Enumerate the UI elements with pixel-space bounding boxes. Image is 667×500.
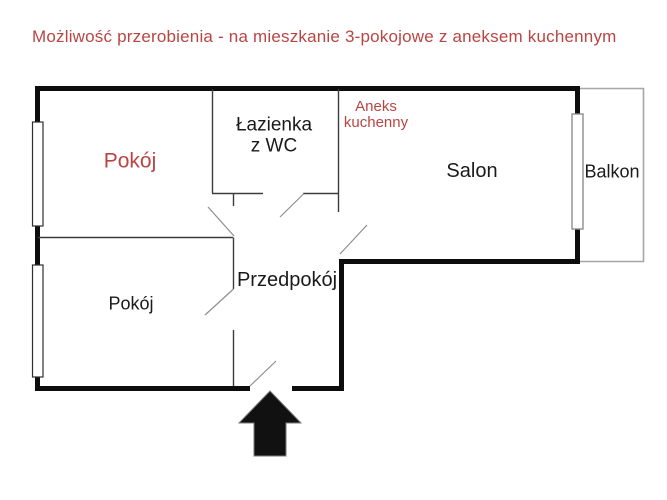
wall-hallway-salon: [339, 259, 344, 391]
door-swing-entrance: [250, 361, 276, 386]
window-balkon-door: [572, 114, 583, 229]
door-swing-salon: [340, 225, 367, 254]
wall-salon-bottom: [339, 259, 580, 264]
door-swing-pokoj-bottom: [205, 289, 234, 315]
floor-plan-drawing: [0, 0, 667, 500]
entrance-arrow-icon: [239, 391, 301, 456]
wall-bottom-left: [35, 386, 250, 391]
window-pokoj-top: [33, 122, 44, 226]
room-label-salon: Salon: [446, 161, 497, 183]
room-label-przedpokoj: Przedpokój: [237, 270, 337, 292]
room-label-pokoj-top: Pokój: [104, 151, 157, 174]
door-swing-pokoj-top: [208, 207, 234, 236]
room-label-aneks-kuchenny: Aneks kuchenny: [344, 99, 408, 131]
room-label-lazienka: Łazienka z WC: [236, 115, 312, 156]
room-label-pokoj-bottom: Pokój: [108, 294, 153, 313]
window-pokoj-bottom: [33, 265, 44, 377]
door-swing-bathroom: [280, 194, 304, 218]
floor-plan-page: Możliwość przerobienia - na mieszkanie 3…: [0, 0, 667, 500]
wall-top: [35, 86, 580, 91]
wall-bottom-right-of-entrance: [292, 386, 344, 391]
room-label-balkon: Balkon: [584, 162, 639, 181]
